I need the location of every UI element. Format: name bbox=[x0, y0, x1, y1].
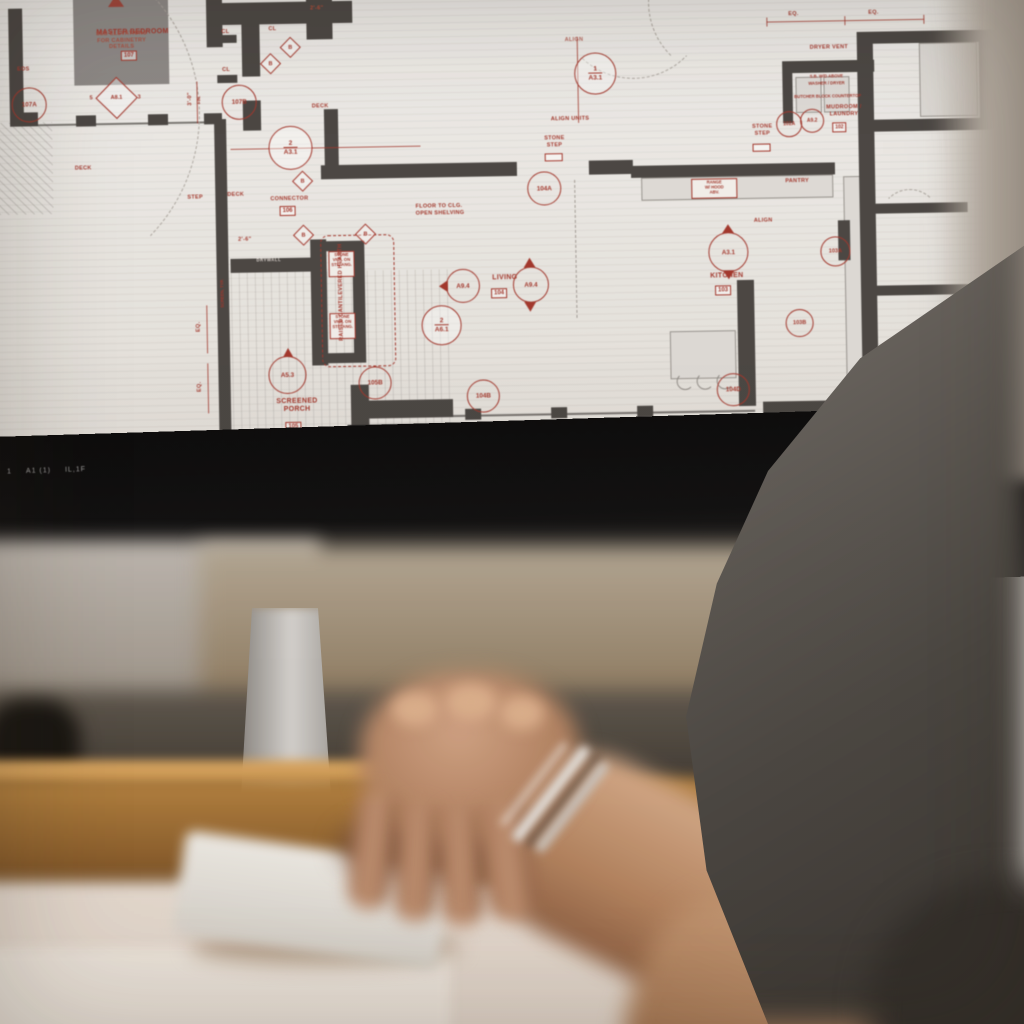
dim-tick bbox=[766, 18, 767, 27]
dim-2-6: 2'-6" bbox=[310, 5, 323, 12]
finger bbox=[393, 801, 441, 923]
stone-step-tag bbox=[753, 144, 771, 152]
closet-label: CL bbox=[268, 26, 276, 33]
window-mullion bbox=[637, 406, 653, 417]
dim-3-0: 3'-0" bbox=[187, 92, 194, 105]
dim-eq: EQ. bbox=[195, 322, 202, 332]
status-item: 1 bbox=[7, 468, 12, 475]
eos-label: EOS bbox=[17, 66, 30, 73]
dim-2-6: 2'-6" bbox=[238, 237, 251, 244]
deck-label: DECK bbox=[75, 165, 92, 172]
compass-arrow bbox=[283, 348, 293, 357]
marker-sheet: A9.4 bbox=[524, 281, 537, 288]
drywall-note: DRYWALL bbox=[256, 258, 281, 263]
marker-sheet: A8.1 bbox=[111, 95, 123, 101]
elev-right-num: 3 bbox=[138, 94, 141, 101]
wall-segment bbox=[220, 1, 352, 25]
marker-sheet: A9.4 bbox=[456, 282, 469, 289]
marker-sheet: A9.2 bbox=[807, 118, 818, 124]
knuckle-highlight bbox=[500, 696, 544, 730]
dim-tick bbox=[844, 16, 845, 25]
elev-arrow-left bbox=[439, 280, 448, 292]
marker-arrow bbox=[722, 224, 734, 233]
deck-label: DECK bbox=[227, 192, 244, 199]
marker-sheet: A6.1 bbox=[435, 324, 449, 333]
room-label-mudroom: MUDROOM / LAUNDRY bbox=[816, 104, 872, 118]
wall-segment bbox=[217, 35, 237, 43]
room-label-connector: CONNECTOR bbox=[249, 195, 329, 203]
room-label-screened-porch: SCREENED PORCH bbox=[257, 397, 337, 414]
room-tag-102: 102 bbox=[832, 122, 847, 132]
room-tag-106: 106 bbox=[280, 206, 296, 216]
elev-arrow-down bbox=[524, 302, 536, 312]
marker-number: 2 bbox=[440, 317, 444, 324]
closet-label: CL bbox=[221, 29, 229, 36]
elevation-arrow bbox=[108, 0, 124, 7]
stone-step-label: STONE STEP bbox=[534, 135, 574, 149]
marker-arrow bbox=[723, 270, 735, 279]
status-item: A1 (1) bbox=[26, 467, 51, 475]
knuckle-highlight bbox=[392, 692, 438, 726]
step-label: STEP bbox=[187, 194, 203, 201]
align-label: ALIGN bbox=[565, 37, 584, 44]
marker-number: 1 bbox=[593, 66, 597, 73]
open-shelving-note: FLOOR TO CLG. OPEN SHELVING bbox=[416, 202, 486, 216]
dim-fin: FIN. bbox=[197, 96, 202, 104]
finger bbox=[438, 805, 484, 926]
elev-arrow-up bbox=[523, 258, 535, 268]
deck-label: DECK bbox=[312, 103, 329, 110]
marker-sheet: A3.1 bbox=[588, 72, 602, 81]
wall-segment bbox=[782, 60, 874, 74]
status-item: IL,1F bbox=[65, 466, 86, 474]
marker-sheet: A3.1 bbox=[284, 147, 298, 156]
room-tag-107: 107 bbox=[121, 51, 137, 61]
dim-eq: EQ. bbox=[197, 382, 204, 392]
room-tag-103: 103 bbox=[715, 285, 731, 295]
wall-segment bbox=[217, 75, 237, 83]
marker-sheet: A5.3 bbox=[281, 371, 294, 378]
align-units-label: ALIGN UNITS bbox=[538, 115, 602, 123]
room-tag-104: 104 bbox=[491, 288, 507, 298]
pantry-label: PANTRY bbox=[775, 178, 819, 185]
stone-step-tag bbox=[545, 153, 563, 161]
wall-segment bbox=[241, 24, 260, 76]
closet-label: CL bbox=[222, 67, 230, 74]
window-mullion bbox=[551, 407, 567, 418]
dim-tick bbox=[923, 15, 924, 24]
photo-of-desk-with-monitor: RANGE W/ HOOD ABV. STONE VNR. ON STL. AN… bbox=[0, 0, 1024, 1024]
wall-segment bbox=[589, 160, 633, 175]
stone-step-label: STONE STEP bbox=[742, 123, 782, 137]
screen-note: SCREEN, TYP. bbox=[220, 263, 226, 323]
knuckle-highlight bbox=[446, 684, 496, 720]
align-label: ALIGN bbox=[754, 217, 773, 224]
marker-sheet: A3.1 bbox=[722, 249, 735, 256]
status-bar-left: 1 A1 (1) IL,1F bbox=[7, 466, 86, 475]
dim-eq: EQ. bbox=[788, 11, 798, 18]
cabinet-note: SEE ELEVATIONS FOR CABINETRY DETAILS bbox=[86, 30, 156, 51]
range-note: RANGE W/ HOOD ABV. bbox=[691, 178, 737, 199]
elev-left-num: 5 bbox=[90, 95, 93, 102]
wall-segment bbox=[324, 109, 339, 167]
dryer-vent-label: DRYER VENT bbox=[801, 44, 857, 51]
dim-eq: EQ. bbox=[868, 10, 878, 17]
